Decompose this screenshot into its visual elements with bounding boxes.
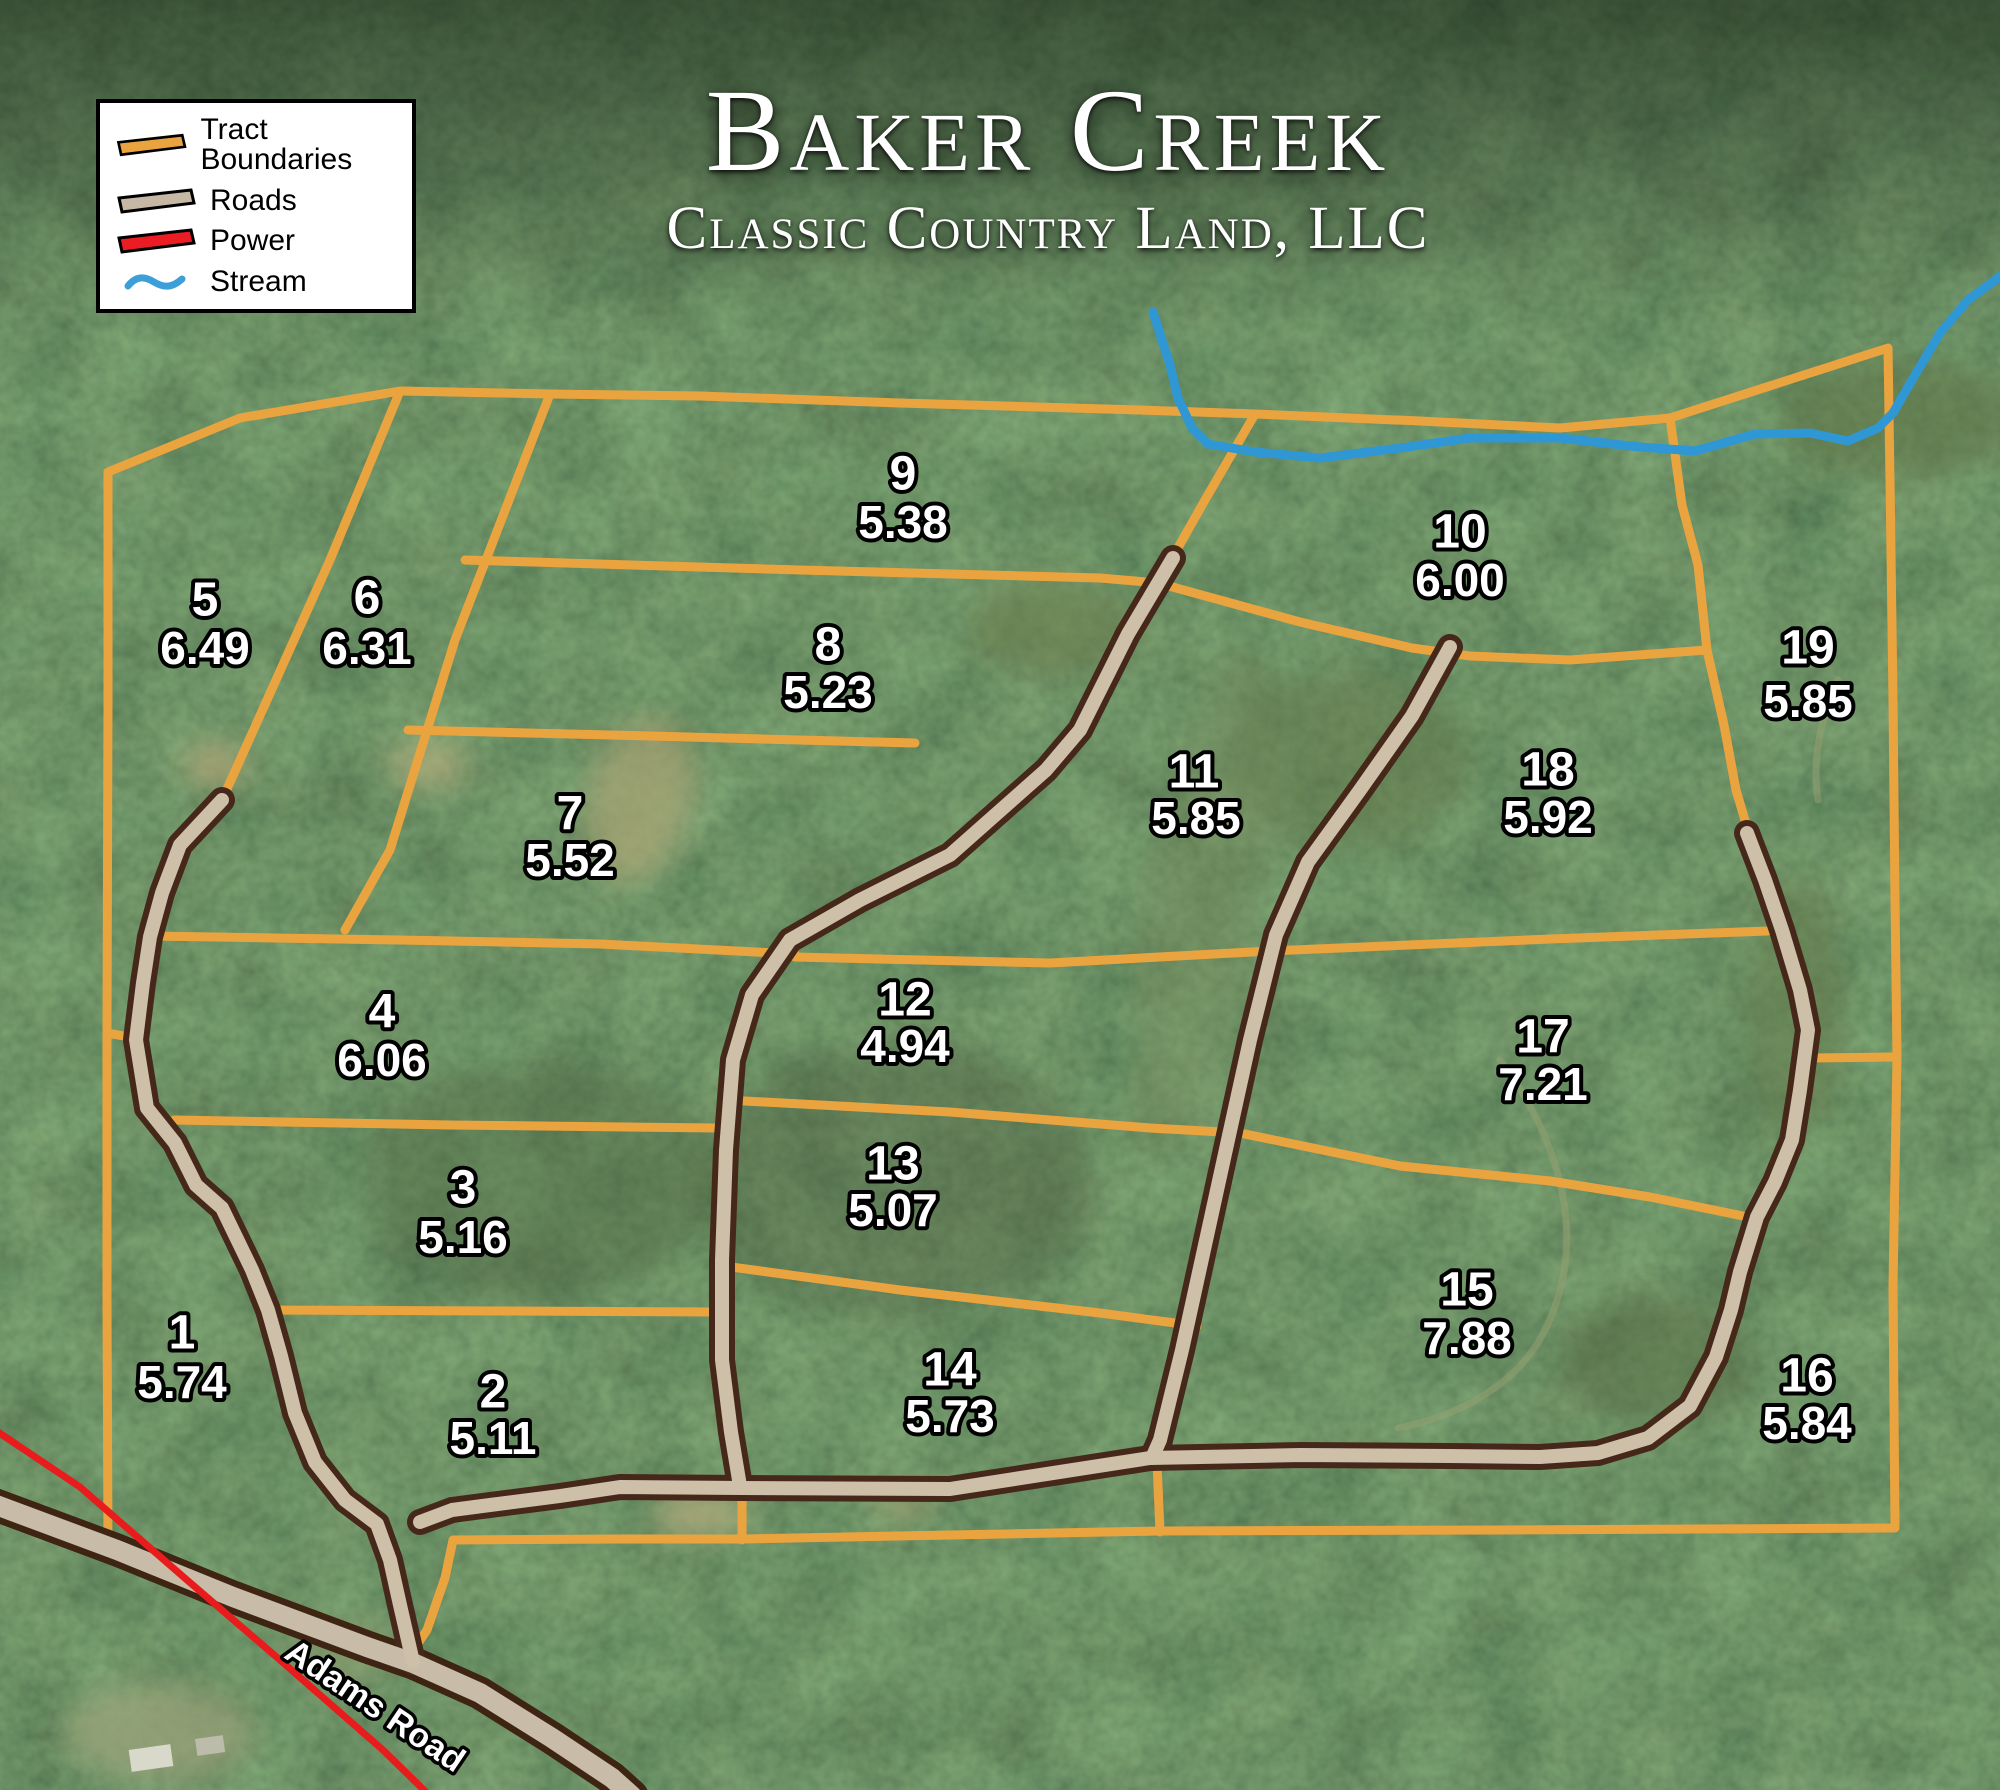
svg-text:5: 5 bbox=[192, 574, 219, 627]
map-subtitle: Classic Country Land, LLC bbox=[667, 194, 1430, 264]
boundary-16-19-stub bbox=[1813, 1057, 1893, 1058]
svg-text:14: 14 bbox=[923, 1344, 977, 1397]
title-block: Baker Creek Classic Country Land, LLC bbox=[667, 72, 1430, 264]
legend-item-stream: Stream bbox=[114, 267, 402, 297]
svg-text:17: 17 bbox=[1516, 1011, 1569, 1064]
svg-text:6: 6 bbox=[354, 572, 381, 625]
legend-item-roads: Roads bbox=[114, 186, 402, 216]
svg-text:5.85: 5.85 bbox=[1151, 792, 1241, 844]
svg-text:5.07: 5.07 bbox=[848, 1184, 938, 1236]
tract-boundary-swatch-icon bbox=[114, 130, 188, 160]
svg-text:15: 15 bbox=[1440, 1264, 1493, 1317]
svg-text:5.11: 5.11 bbox=[450, 1412, 537, 1464]
svg-text:9: 9 bbox=[890, 448, 917, 501]
svg-text:4: 4 bbox=[369, 986, 396, 1039]
svg-text:5.84: 5.84 bbox=[1762, 1397, 1852, 1449]
svg-text:16: 16 bbox=[1780, 1350, 1833, 1403]
legend-label: Stream bbox=[210, 267, 307, 297]
svg-text:4.94: 4.94 bbox=[860, 1020, 950, 1072]
road-swatch-icon bbox=[114, 186, 198, 216]
svg-text:19: 19 bbox=[1781, 622, 1834, 675]
svg-text:8: 8 bbox=[815, 619, 842, 672]
map-title: Baker Creek bbox=[667, 72, 1430, 190]
svg-text:7: 7 bbox=[557, 788, 584, 841]
map-stage: 1 5.74 2 5.11 3 5.16 4 6.06 5 6.49 6 6.3… bbox=[0, 0, 2000, 1790]
svg-text:6.06: 6.06 bbox=[337, 1034, 427, 1086]
legend-label: Power bbox=[210, 226, 295, 256]
legend-item-power: Power bbox=[114, 226, 402, 256]
svg-text:7.88: 7.88 bbox=[1422, 1312, 1512, 1364]
svg-text:5.73: 5.73 bbox=[905, 1390, 995, 1442]
svg-text:5.85: 5.85 bbox=[1763, 675, 1853, 727]
svg-text:11: 11 bbox=[1169, 746, 1220, 799]
svg-text:6.49: 6.49 bbox=[160, 622, 250, 674]
svg-text:18: 18 bbox=[1521, 744, 1574, 797]
svg-text:5.23: 5.23 bbox=[783, 666, 873, 718]
legend-box: Tract Boundaries Roads Power Stream bbox=[96, 99, 416, 313]
power-swatch-icon bbox=[114, 226, 198, 256]
boundary-2-3 bbox=[267, 1310, 720, 1312]
stream-swatch-icon bbox=[114, 267, 198, 297]
svg-text:7.21: 7.21 bbox=[1498, 1058, 1588, 1110]
svg-text:6.00: 6.00 bbox=[1415, 554, 1505, 606]
boundary-14-15-stub bbox=[1157, 1462, 1160, 1532]
legend-label: Tract Boundaries bbox=[200, 115, 402, 175]
svg-text:12: 12 bbox=[878, 974, 931, 1027]
svg-text:13: 13 bbox=[866, 1138, 919, 1191]
svg-text:3: 3 bbox=[450, 1162, 477, 1215]
legend-item-tract-boundaries: Tract Boundaries bbox=[114, 115, 402, 175]
svg-text:6.31: 6.31 bbox=[322, 622, 412, 674]
svg-text:5.16: 5.16 bbox=[418, 1211, 508, 1263]
svg-text:5.38: 5.38 bbox=[858, 496, 948, 548]
svg-text:1: 1 bbox=[169, 1307, 196, 1360]
svg-text:2: 2 bbox=[480, 1366, 507, 1419]
svg-text:5.52: 5.52 bbox=[525, 834, 615, 886]
svg-text:5.92: 5.92 bbox=[1503, 791, 1593, 843]
svg-text:5.74: 5.74 bbox=[137, 1356, 227, 1408]
svg-text:10: 10 bbox=[1433, 506, 1486, 559]
legend-label: Roads bbox=[210, 186, 297, 216]
